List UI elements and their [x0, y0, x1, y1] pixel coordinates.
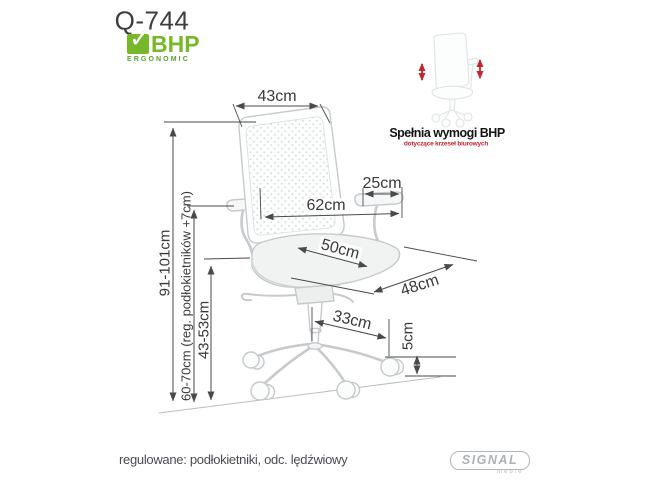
signal-brand-logo: SIGNAL	[450, 451, 530, 470]
signal-brand-subname: meble	[497, 469, 523, 475]
floor-line	[159, 377, 440, 413]
dim-total-height-label: 91-101cm	[158, 230, 173, 297]
adjustability-note: regulowane: podłokietniki, odc. lędźwiow…	[119, 452, 347, 467]
bhp-thumbnail-chair	[432, 33, 478, 127]
chair-art	[159, 107, 440, 413]
bhp-logo-text: BHP	[151, 34, 200, 54]
dim-armrest-height-label: 60-70cm (reg. podłokietników +7cm)	[180, 191, 193, 401]
bhp-logo-subtext: ERGONOMIC	[127, 56, 197, 63]
compliance-subheading: dotyczące krzeseł biurowych	[404, 141, 488, 148]
bhp-ergonomic-logo: ✓ BHP ERGONOMIC	[127, 34, 197, 63]
compliance-heading: Spełnia wymogi BHP	[389, 126, 504, 140]
dim-back-width-label: 43cm	[257, 89, 296, 105]
dim-total-depth-label: 62cm	[304, 198, 347, 214]
product-dimension-sheet: Q-744 ✓ BHP ERGONOMIC 43cm 91-101cm 60-7…	[0, 0, 648, 486]
checkmark-icon: ✓	[127, 34, 149, 54]
dim-caster-height-label: 5cm	[401, 322, 416, 350]
signal-brand-name: SIGNAL	[462, 454, 518, 467]
dim-armrest-pad-label: 25cm	[362, 176, 401, 192]
dim-seat-height-label: 43-53cm	[197, 301, 212, 359]
